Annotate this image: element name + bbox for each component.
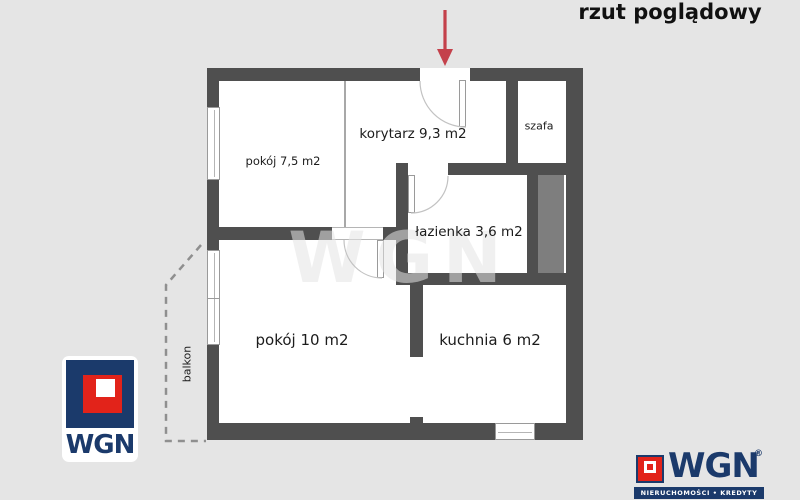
plan-title: rzut poglądowy (575, 0, 765, 24)
balcony-outline (166, 245, 206, 441)
wall-left-upper (207, 68, 219, 107)
wall-right (566, 68, 583, 440)
window-kitchen (495, 423, 535, 440)
wall-kitchen-divider-stub (410, 417, 423, 423)
room10-door-opening (332, 227, 383, 240)
room-label-szafa: szafa (525, 120, 554, 133)
window-frame-line (214, 110, 215, 177)
ventilation-shaft (538, 175, 564, 273)
wall-kitchen-divider (410, 285, 423, 357)
window-divider (208, 298, 219, 299)
wgn-logo-mark (66, 360, 134, 428)
room-label-pokoj-75: pokój 7,5 m2 (246, 154, 321, 168)
wgn-logo-card: WGN (62, 356, 138, 462)
wall-bottom-right (535, 423, 583, 440)
wall-closet-left (506, 81, 518, 163)
wall-bathroom-left (396, 163, 408, 285)
wgn-logo-text: WGN (62, 430, 138, 460)
room-label-pokoj-10: pokój 10 m2 (256, 331, 349, 349)
partition-hall (344, 81, 346, 227)
window-room-small (207, 107, 220, 180)
entrance-arrow-icon (437, 10, 453, 66)
wgn-brand-mark-dot (647, 464, 653, 470)
entrance-door-leaf (459, 80, 466, 127)
wgn-brand-mark (636, 455, 664, 483)
wall-top-left (207, 68, 420, 81)
wgn-logo-white-square (96, 379, 115, 397)
wall-bathroom-right (527, 163, 538, 273)
registered-mark: ® (754, 449, 763, 459)
wall-bottom-left (207, 423, 495, 440)
wall-kitchen-top (396, 273, 583, 285)
room-label-lazienka: łazienka 3,6 m2 (415, 224, 522, 240)
bathroom-door-leaf (408, 175, 415, 213)
wgn-brand-text: WGN (668, 446, 759, 486)
wgn-brand-mark-red (638, 457, 662, 481)
wgn-tagline-bar: NIERUCHOMOŚCI • KREDYTY (634, 487, 764, 499)
room10-door-leaf (377, 240, 384, 278)
wall-room-divider (207, 227, 332, 240)
wgn-brand-logo: WGN ® NIERUCHOMOŚCI • KREDYTY (632, 446, 794, 500)
room-label-kuchnia: kuchnia 6 m2 (439, 331, 541, 349)
balcony-door-window (207, 250, 220, 345)
room-label-korytarz: korytarz 9,3 m2 (359, 126, 466, 142)
room-label-balkon: balkon (181, 346, 194, 382)
wgn-logo-red-square (83, 375, 122, 413)
bathroom-door-opening (408, 163, 448, 175)
window-frame-line (498, 432, 532, 433)
wgn-brand-mark-white (644, 461, 656, 473)
wgn-tagline: NIERUCHOMOŚCI • KREDYTY (641, 489, 758, 497)
wall-bathroom-top (448, 163, 566, 175)
floorplan-image: rzut poglądowy WGN (0, 0, 800, 500)
